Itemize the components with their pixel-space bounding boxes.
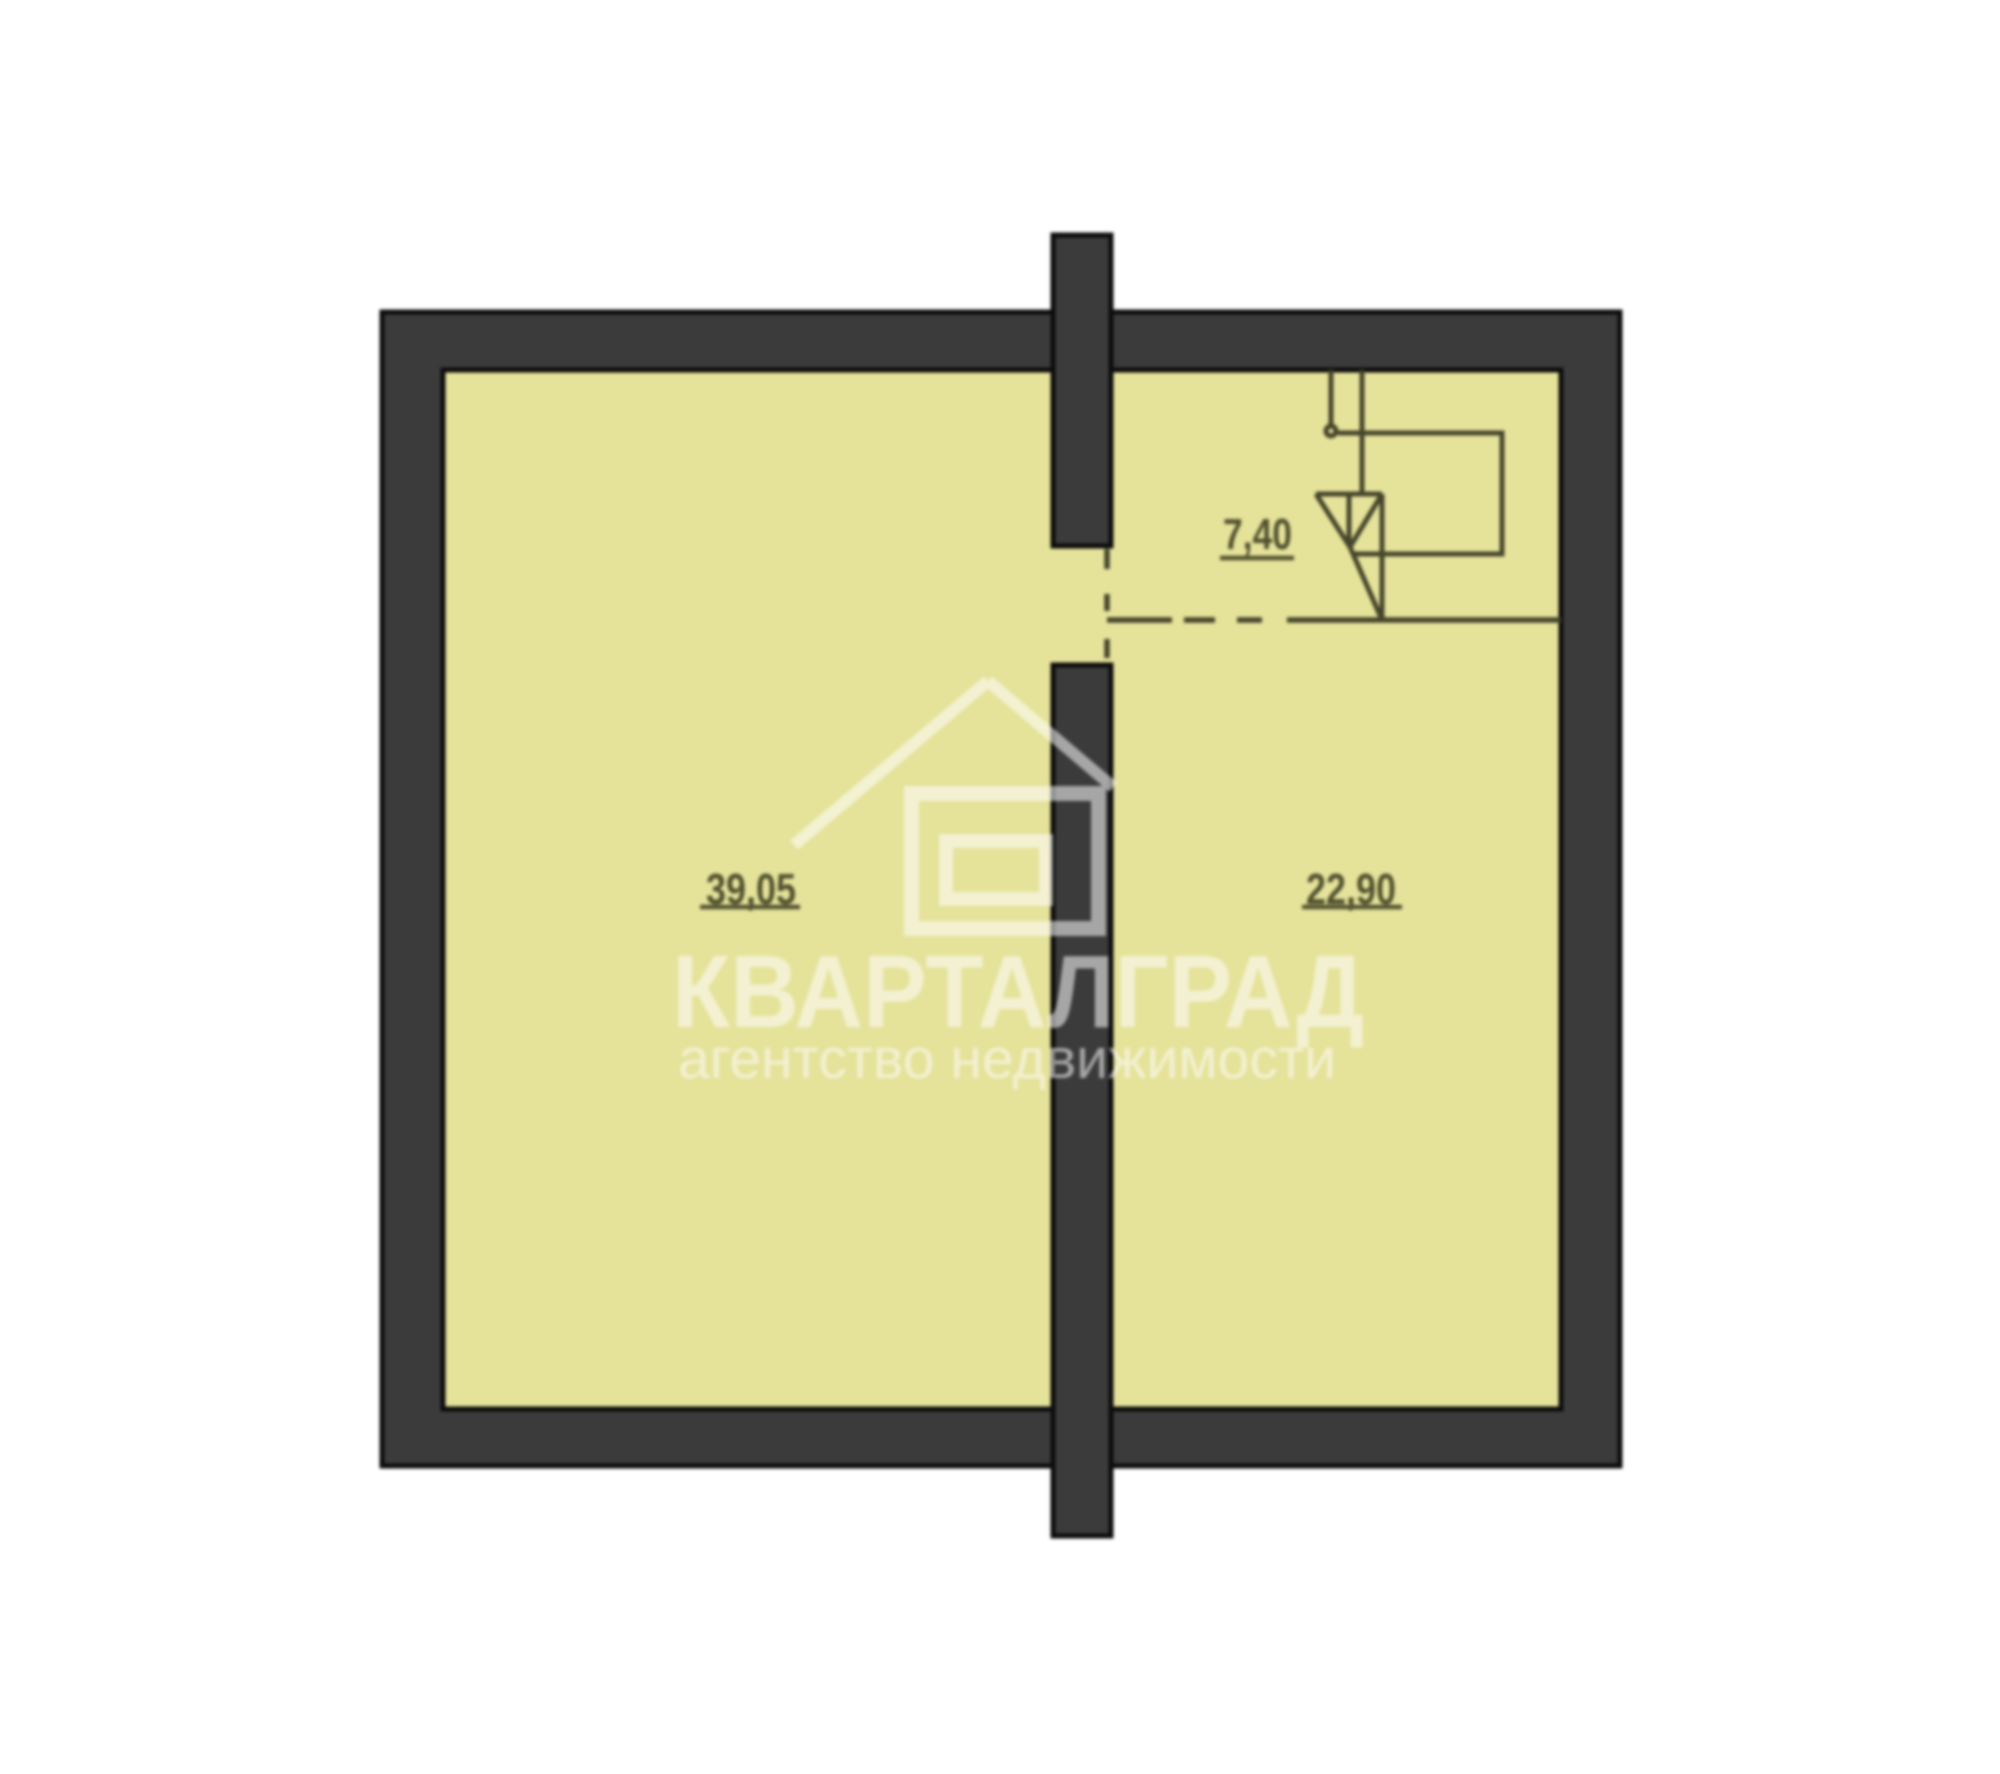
svg-text:7,40: 7,40 (1223, 510, 1292, 559)
svg-text:агентство недвижимости: агентство недвижимости (678, 1027, 1336, 1091)
